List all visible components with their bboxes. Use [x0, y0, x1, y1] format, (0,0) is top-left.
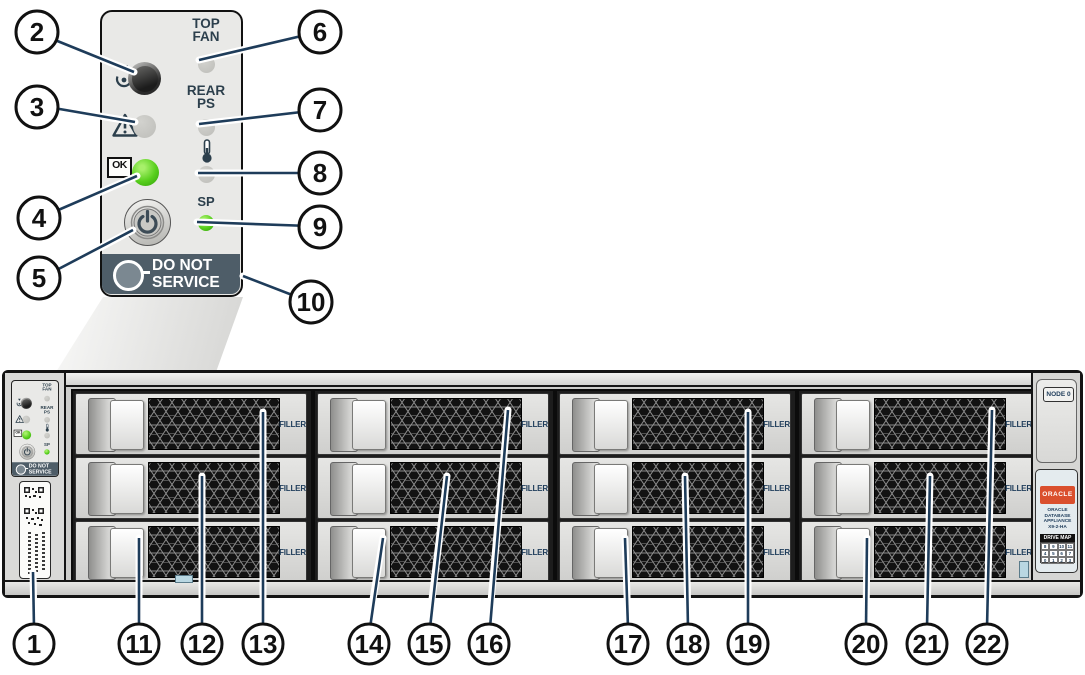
bay-mesh: [148, 398, 280, 450]
rear-ps-label: REAR PS: [184, 84, 228, 110]
power-symbol-icon: [20, 444, 35, 459]
drive-bay: FILLER: [559, 521, 791, 583]
sp-led: [44, 449, 49, 454]
chassis-top-rim: [5, 373, 1080, 387]
qr-code-icon: [23, 486, 47, 528]
bay-mesh: [632, 526, 764, 578]
do-not-service-dash: [141, 271, 150, 274]
chassis-left-ear: OK TOP FAN: [5, 373, 66, 595]
callout-number: 13: [249, 629, 278, 659]
bay-mesh: [874, 462, 1006, 514]
bay-filler-label: FILLER: [521, 394, 548, 454]
bay-mesh: [874, 526, 1006, 578]
bay-filler-label: FILLER: [763, 522, 790, 582]
oracle-logo: ORACLE: [1040, 486, 1075, 504]
drive-bay: FILLER: [317, 457, 549, 519]
drive-bay: FILLER: [559, 457, 791, 519]
callout-number: 20: [852, 629, 881, 659]
power-button: [19, 444, 35, 460]
bay-filler-label: FILLER: [763, 458, 790, 518]
drive-bay-group-1: FILLER FILLER FILLER: [71, 389, 313, 587]
bay-mesh: [874, 398, 1006, 450]
mount-tab: [1019, 561, 1029, 578]
bay-filler-label: FILLER: [521, 458, 548, 518]
drive-bay: FILLER: [75, 521, 307, 583]
product-name: ORACLE DATABASE APPLIANCE X9-2-HA: [1036, 508, 1079, 530]
drive-bay: FILLER: [317, 393, 549, 455]
drive-bay: FILLER: [75, 457, 307, 519]
zoom-beam: [0, 297, 260, 372]
callout-number: 6: [313, 17, 327, 47]
power-symbol-icon: [125, 200, 170, 245]
callout-number: 10: [297, 287, 326, 317]
drive-map-grid: 8 9 10 11 4 5 6 7 0 1 2 3: [1040, 542, 1075, 563]
drive-bay: FILLER: [559, 393, 791, 455]
callout-number: 19: [734, 629, 763, 659]
callout-number: 7: [313, 95, 327, 125]
callout-number: 9: [313, 212, 327, 242]
callout-number: 8: [313, 158, 327, 188]
front-panel-mini: OK TOP FAN: [11, 380, 59, 477]
top-fan-led: [44, 396, 50, 402]
bay-mesh: [632, 462, 764, 514]
bay-filler-label: FILLER: [279, 458, 306, 518]
drive-bay: FILLER: [75, 393, 307, 455]
rear-ps-led: [44, 417, 50, 423]
ok-box-icon: OK: [14, 430, 22, 437]
bay-mesh: [632, 398, 764, 450]
do-not-service-label: DO NOT SERVICE: [29, 463, 52, 474]
node-label: NODE 0: [1043, 387, 1074, 402]
sp-led: [198, 215, 214, 231]
ok-led: [132, 159, 159, 186]
bay-filler-label: FILLER: [279, 522, 306, 582]
bay-filler-label: FILLER: [1005, 458, 1032, 518]
ok-led: [22, 430, 31, 439]
drive-bay: FILLER: [317, 521, 549, 583]
do-not-service-label: DO NOT SERVICE: [152, 257, 220, 291]
callout-number: 22: [973, 629, 1002, 659]
sp-label: SP: [40, 442, 55, 446]
drive-bay: FILLER: [801, 457, 1033, 519]
bay-filler-label: FILLER: [763, 394, 790, 454]
bay-filler-label: FILLER: [1005, 394, 1032, 454]
fault-led: [133, 115, 156, 138]
callout-number: 11: [125, 629, 153, 659]
rear-ps-label: REAR PS: [40, 405, 55, 414]
serial-label: [19, 481, 51, 579]
callout-number: 15: [415, 629, 444, 659]
power-button: [124, 199, 171, 246]
front-panel-mini-content: OK TOP FAN: [12, 381, 58, 476]
bay-mesh: [390, 462, 522, 514]
right-ear-panel: NODE 0: [1036, 379, 1077, 463]
bay-filler-label: FILLER: [521, 522, 548, 582]
top-fan-led: [198, 56, 215, 73]
do-not-service-indicator: [113, 260, 144, 291]
callout-number: 14: [355, 629, 384, 659]
thermometer-icon: [45, 423, 50, 432]
top-fan-label: TOP FAN: [184, 17, 228, 43]
drive-bay-group-2: FILLER FILLER FILLER: [313, 389, 555, 587]
callout-number: 1: [27, 629, 41, 659]
callout-number: 16: [475, 629, 504, 659]
server-chassis: OK TOP FAN: [2, 370, 1083, 598]
label-microtext: [35, 534, 38, 574]
drive-bay: FILLER: [801, 393, 1033, 455]
front-panel-inset: OK TOP FAN REAR PS: [100, 10, 243, 297]
do-not-service-band: DO NOT SERVICE: [12, 462, 58, 475]
callout-number: 3: [30, 92, 44, 122]
callout-number: 18: [674, 629, 703, 659]
label-microtext: [42, 532, 45, 570]
callout-number: 4: [32, 203, 47, 233]
bay-mesh: [390, 526, 522, 578]
ok-box-icon: OK: [107, 157, 132, 178]
do-not-service-band: DO NOT SERVICE: [102, 254, 240, 294]
drive-bay-group-4: FILLER FILLER FILLER: [797, 389, 1039, 587]
chassis-bottom-rim: [5, 580, 1080, 595]
drive-bay-group-3: FILLER FILLER FILLER: [555, 389, 797, 587]
bay-mesh: [390, 398, 522, 450]
top-fan-label: TOP FAN: [40, 383, 55, 392]
thermometer-icon: [199, 138, 215, 164]
callout-number: 5: [32, 263, 46, 293]
mount-tab: [175, 575, 193, 583]
label-microtext: [28, 532, 31, 574]
locate-button-face: [132, 66, 158, 92]
rear-ps-led: [198, 119, 215, 136]
callout-number: 17: [614, 629, 643, 659]
callout-number: 2: [30, 17, 44, 47]
drive-map-title: DRIVE MAP: [1040, 534, 1075, 542]
chassis-right-ear: NODE 0 ORACLE ORACLE DATABASE APPLIANCE …: [1031, 373, 1080, 595]
bay-latch-handle: [110, 400, 144, 450]
bay-filler-label: FILLER: [279, 394, 306, 454]
drive-bay: FILLER: [801, 521, 1033, 583]
bay-mesh: [148, 526, 280, 578]
temperature-led: [44, 433, 50, 439]
oracle-product-label: ORACLE ORACLE DATABASE APPLIANCE X9-2-HA…: [1035, 469, 1078, 573]
hardware-diagram: OK TOP FAN REAR PS: [0, 0, 1085, 675]
temperature-led: [198, 166, 215, 183]
front-panel-content: OK TOP FAN REAR PS: [102, 12, 240, 294]
callout-number: 21: [913, 629, 942, 659]
sp-label: SP: [184, 195, 228, 208]
bay-mesh: [148, 462, 280, 514]
locate-button: [21, 398, 32, 409]
fault-led: [22, 416, 30, 424]
callout-number: 12: [188, 629, 217, 659]
locate-button: [128, 62, 161, 95]
